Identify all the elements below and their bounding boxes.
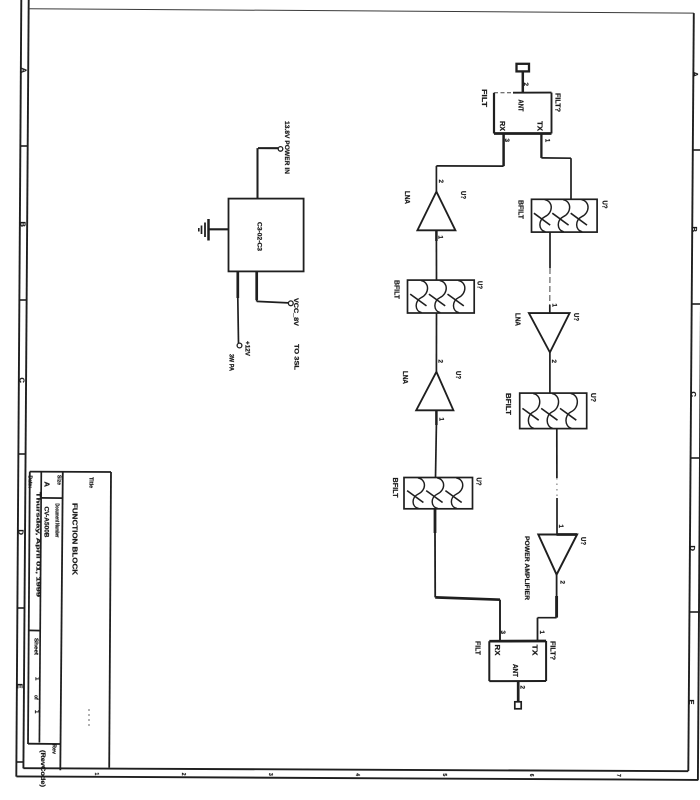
svg-text:U?: U? xyxy=(572,313,579,321)
svg-text:E: E xyxy=(16,684,25,689)
svg-text:1: 1 xyxy=(551,304,558,308)
svg-text:(RevCode): (RevCode) xyxy=(39,750,45,787)
svg-text:C: C xyxy=(689,392,698,398)
svg-text:Document Number: Document Number xyxy=(54,504,60,538)
svg-text:BFILT: BFILT xyxy=(517,200,524,220)
svg-text:TX: TX xyxy=(536,121,543,131)
svg-text:3W PA: 3W PA xyxy=(228,354,234,372)
svg-text:ANT: ANT xyxy=(517,100,524,113)
svg-text:TX: TX xyxy=(530,645,537,656)
svg-text:3: 3 xyxy=(499,631,506,635)
svg-text:5: 5 xyxy=(441,774,447,777)
svg-text:Thursday, April 01, 1999: Thursday, April 01, 1999 xyxy=(35,492,41,597)
svg-text:ANT: ANT xyxy=(511,664,518,678)
svg-text:RX: RX xyxy=(498,121,505,131)
svg-text:3: 3 xyxy=(503,139,510,143)
svg-text:1: 1 xyxy=(34,677,41,681)
svg-text:E: E xyxy=(687,700,696,705)
svg-text:D: D xyxy=(17,530,26,536)
svg-text:C3-02-C3: C3-02-C3 xyxy=(256,222,263,251)
svg-text:2: 2 xyxy=(558,581,565,585)
svg-text:FILT: FILT xyxy=(480,89,487,108)
svg-text:2: 2 xyxy=(437,360,444,364)
svg-text:2: 2 xyxy=(180,773,186,776)
svg-text:FILT: FILT xyxy=(474,641,481,656)
svg-text:13.8V POWER IN: 13.8V POWER IN xyxy=(283,121,290,174)
svg-text:of: of xyxy=(33,695,39,700)
svg-text:1: 1 xyxy=(557,525,564,529)
svg-text:U?: U? xyxy=(589,393,596,402)
svg-text:Date:: Date: xyxy=(27,476,33,489)
svg-text:2: 2 xyxy=(437,180,444,184)
svg-text:U?: U? xyxy=(601,201,608,209)
svg-text:6: 6 xyxy=(528,774,534,777)
svg-text:POWER AMPLIFIER: POWER AMPLIFIER xyxy=(523,536,530,600)
svg-text:1: 1 xyxy=(93,773,99,776)
svg-text:U?: U? xyxy=(459,191,466,199)
svg-text:1: 1 xyxy=(33,710,40,714)
svg-text:1: 1 xyxy=(437,236,444,240)
svg-text:4: 4 xyxy=(354,773,360,776)
svg-text:1: 1 xyxy=(544,139,551,143)
svg-text:BFILT: BFILT xyxy=(393,280,400,300)
svg-text:FILT?: FILT? xyxy=(549,641,556,660)
svg-text:Rev: Rev xyxy=(51,744,57,755)
svg-text:FUNCTION BLOCK: FUNCTION BLOCK xyxy=(71,503,78,575)
svg-text:LNA: LNA xyxy=(401,371,408,384)
svg-text:Sheet: Sheet xyxy=(33,638,39,655)
svg-text:B: B xyxy=(19,222,28,228)
svg-text:A: A xyxy=(20,68,29,74)
svg-text:2: 2 xyxy=(522,83,529,87)
svg-text:U?: U? xyxy=(474,478,481,486)
svg-text:VCC_8V: VCC_8V xyxy=(292,298,298,326)
svg-text:U?: U? xyxy=(454,371,461,379)
svg-text:7: 7 xyxy=(615,774,621,777)
svg-text:RX: RX xyxy=(493,645,500,656)
svg-text:LNA: LNA xyxy=(513,313,520,326)
svg-text:Title: Title xyxy=(88,477,94,488)
svg-text:A: A xyxy=(691,72,700,78)
svg-text:B: B xyxy=(690,227,699,233)
svg-text:CV-A500B: CV-A500B xyxy=(43,507,49,539)
svg-text:LNA: LNA xyxy=(403,191,410,204)
svg-text:A: A xyxy=(43,482,52,488)
svg-text:1: 1 xyxy=(538,631,545,635)
svg-text:U?: U? xyxy=(476,281,483,289)
svg-text:Size: Size xyxy=(56,475,62,485)
svg-text:2: 2 xyxy=(518,686,525,690)
svg-text:FILT?: FILT? xyxy=(554,93,561,112)
svg-text:C: C xyxy=(18,378,27,384)
svg-text:D: D xyxy=(688,546,697,552)
svg-text:2: 2 xyxy=(550,360,557,364)
svg-text:U?: U? xyxy=(579,537,586,545)
svg-text:BFILT: BFILT xyxy=(391,478,398,499)
svg-text:BFILT: BFILT xyxy=(504,393,511,416)
svg-text:3: 3 xyxy=(267,773,273,776)
svg-text:TO 3SL: TO 3SL xyxy=(293,344,299,370)
svg-text:+12V: +12V xyxy=(244,341,250,356)
svg-text:1: 1 xyxy=(438,418,445,422)
